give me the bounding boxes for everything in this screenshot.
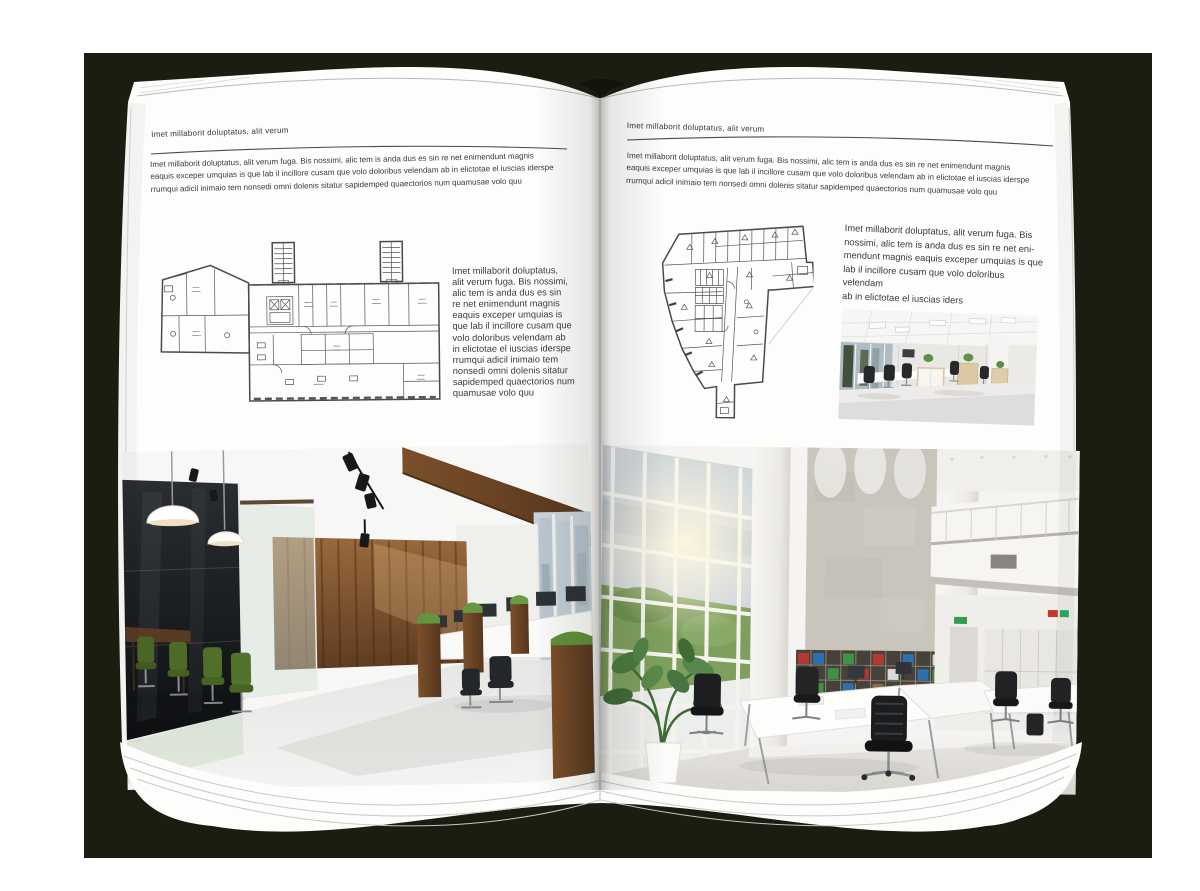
left-floorplan-figure	[152, 223, 446, 414]
right-header-rule	[626, 133, 1056, 149]
right-page-header: Imet millaborit doluptatus, alit verum	[627, 121, 765, 134]
magazine-spread-mockup: Imet millaborit doluptatus, alit verum I…	[0, 0, 1200, 891]
left-floorplan-drawing	[152, 223, 446, 414]
mezzanine-balcony	[930, 489, 1079, 596]
right-office-photo	[599, 445, 1080, 795]
left-office-photo	[121, 444, 596, 790]
right-floorplan-drawing	[650, 221, 814, 420]
right-page-intro: Imet millaborit doluptatus, alit verum f…	[626, 150, 1051, 201]
right-floorplan-figure	[650, 221, 814, 420]
concrete-wall	[805, 445, 937, 658]
small-office-photo	[838, 309, 1038, 426]
right-page-caption: Imet millaborit doluptatus, alit verum f…	[842, 222, 1045, 311]
left-page-header: Imet millaborit doluptatus, alit verum	[151, 126, 289, 139]
left-page-caption: Imet millaborit doluptatus, alit verum f…	[452, 265, 593, 399]
